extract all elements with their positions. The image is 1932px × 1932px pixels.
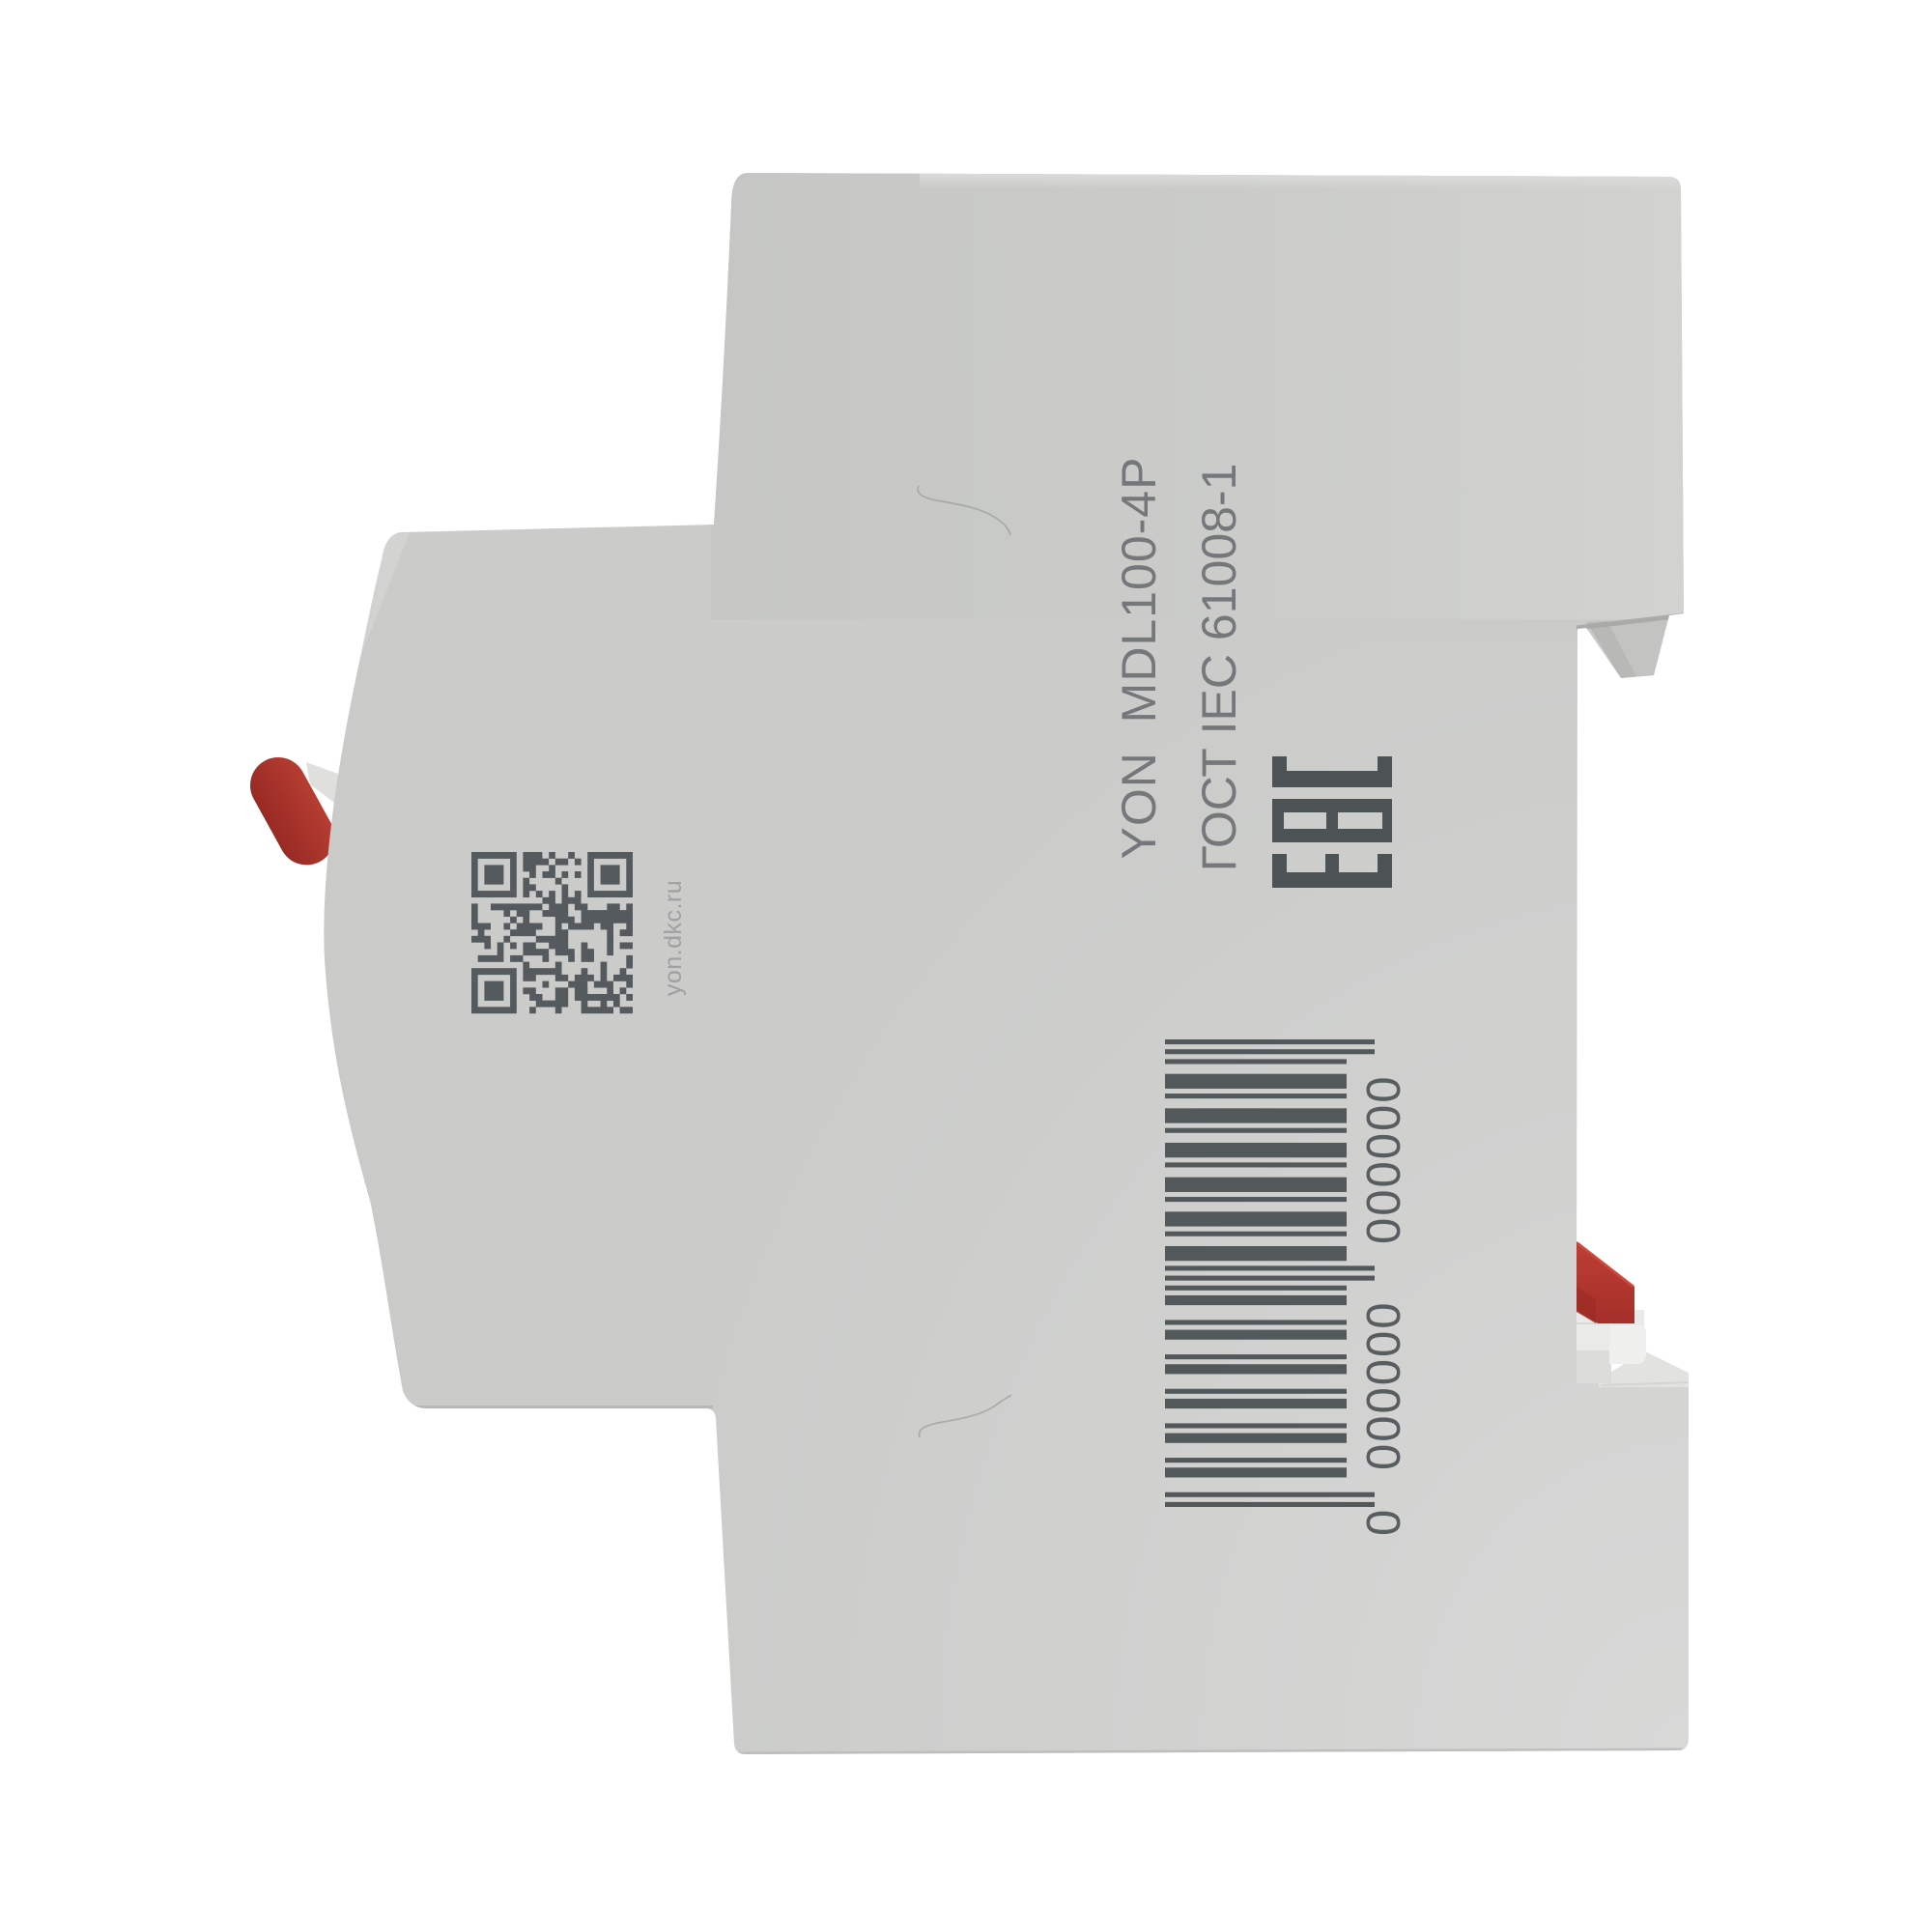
svg-text:yon.dkc.ru: yon.dkc.ru xyxy=(660,880,687,996)
svg-text:YON MDL100-4P: YON MDL100-4P xyxy=(1112,457,1166,860)
svg-text:ГОСТ IEC 61008-1: ГОСТ IEC 61008-1 xyxy=(1192,464,1246,872)
svg-text:000000: 000000 xyxy=(1358,1074,1410,1244)
svg-text:0: 0 xyxy=(1358,1510,1410,1536)
svg-text:000000: 000000 xyxy=(1358,1300,1410,1470)
